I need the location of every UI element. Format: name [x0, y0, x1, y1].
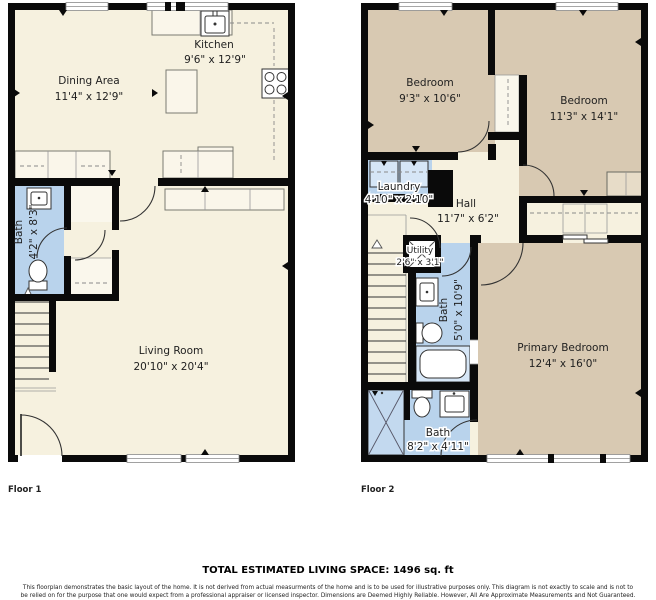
room-dims-bedroom2: 11'3" x 14'1" — [550, 111, 618, 123]
room-label-bath1: Bath — [13, 220, 25, 244]
room-dims-utility: 2'6" x 3'1" — [396, 258, 443, 268]
primary-wall-opening — [470, 340, 478, 364]
room-dims-bath-lower: 8'2" x 4'11" — [407, 441, 469, 453]
kitchen-island — [166, 70, 197, 113]
bath1-toilet — [29, 260, 47, 290]
room-label-bedroom2: Bedroom — [560, 95, 608, 107]
room-label-dining: Dining Area — [58, 75, 119, 87]
floorplan-page: Dining Area 11'4" x 12'9" Kitchen 9'6" x… — [0, 0, 656, 600]
floor2-plan: Bedroom 9'3" x 10'6" Bedroom 11'3" x 14'… — [361, 3, 648, 496]
bedroom2-dresser — [607, 172, 645, 196]
floor1-label: Floor 1 — [8, 485, 42, 495]
room-dims-living: 20'10" x 20'4" — [133, 361, 208, 373]
living-sofa — [165, 189, 284, 210]
bath-lower-toilet — [412, 390, 432, 417]
disclaimer-line1: This floorplan demonstrates the basic la… — [22, 585, 634, 591]
room-dims-laundry: 4'10" x 2'10" — [365, 194, 433, 206]
bath-upper-toilet — [416, 323, 442, 343]
room-label-bedroom1: Bedroom — [406, 77, 454, 89]
room-dims-bath-upper: 5'0" x 10'9" — [453, 279, 465, 341]
kitchen-counter-bottom — [163, 147, 233, 178]
bedrooms-closet — [495, 75, 519, 132]
sliding-closet-door — [563, 235, 587, 239]
room-dims-hall: 11'7" x 6'2" — [437, 213, 499, 225]
kitchen-sink — [201, 11, 229, 36]
bath-upper-tub — [416, 346, 470, 382]
floor1-closet-lower — [71, 258, 112, 294]
stove-icon — [262, 69, 289, 98]
bath-lower-sink — [440, 391, 469, 417]
room-label-laundry: Laundry — [378, 181, 421, 193]
bath-upper-entry — [441, 243, 470, 273]
floorplan-canvas: Dining Area 11'4" x 12'9" Kitchen 9'6" x… — [0, 0, 656, 600]
room-dims-dining: 11'4" x 12'9" — [55, 91, 123, 103]
room-dims-kitchen: 9'6" x 12'9" — [184, 54, 246, 66]
bath-upper-sink — [416, 278, 438, 306]
floor2-label: Floor 2 — [361, 485, 395, 495]
total-living-space-text: TOTAL ESTIMATED LIVING SPACE: 1496 sq. f… — [202, 565, 454, 576]
floor1-closet-upper — [71, 186, 112, 222]
room-label-bath-upper: Bath — [438, 298, 450, 322]
room-dims-bedroom1: 9'3" x 10'6" — [399, 93, 461, 105]
room-label-living: Living Room — [139, 345, 203, 357]
room-label-utility: Utility — [407, 246, 434, 256]
room-dims-bath1: 4'2" x 8'3" — [28, 204, 40, 259]
floor1-plan: Dining Area 11'4" x 12'9" Kitchen 9'6" x… — [8, 2, 295, 495]
room-label-hall: Hall — [456, 198, 476, 210]
dining-sofa — [15, 151, 110, 180]
room-label-primary: Primary Bedroom — [517, 342, 608, 354]
room-dims-primary: 12'4" x 16'0" — [529, 358, 597, 370]
disclaimer-line2: be relied on for the purpose that one wo… — [21, 593, 636, 599]
bedroom2-doorway — [495, 140, 519, 196]
shower-icon — [368, 390, 404, 455]
room-label-bath-lower: Bath — [426, 427, 450, 439]
room-label-kitchen: Kitchen — [194, 39, 233, 51]
sliding-closet-door-2 — [584, 239, 608, 243]
footer: TOTAL ESTIMATED LIVING SPACE: 1496 sq. f… — [21, 565, 636, 599]
